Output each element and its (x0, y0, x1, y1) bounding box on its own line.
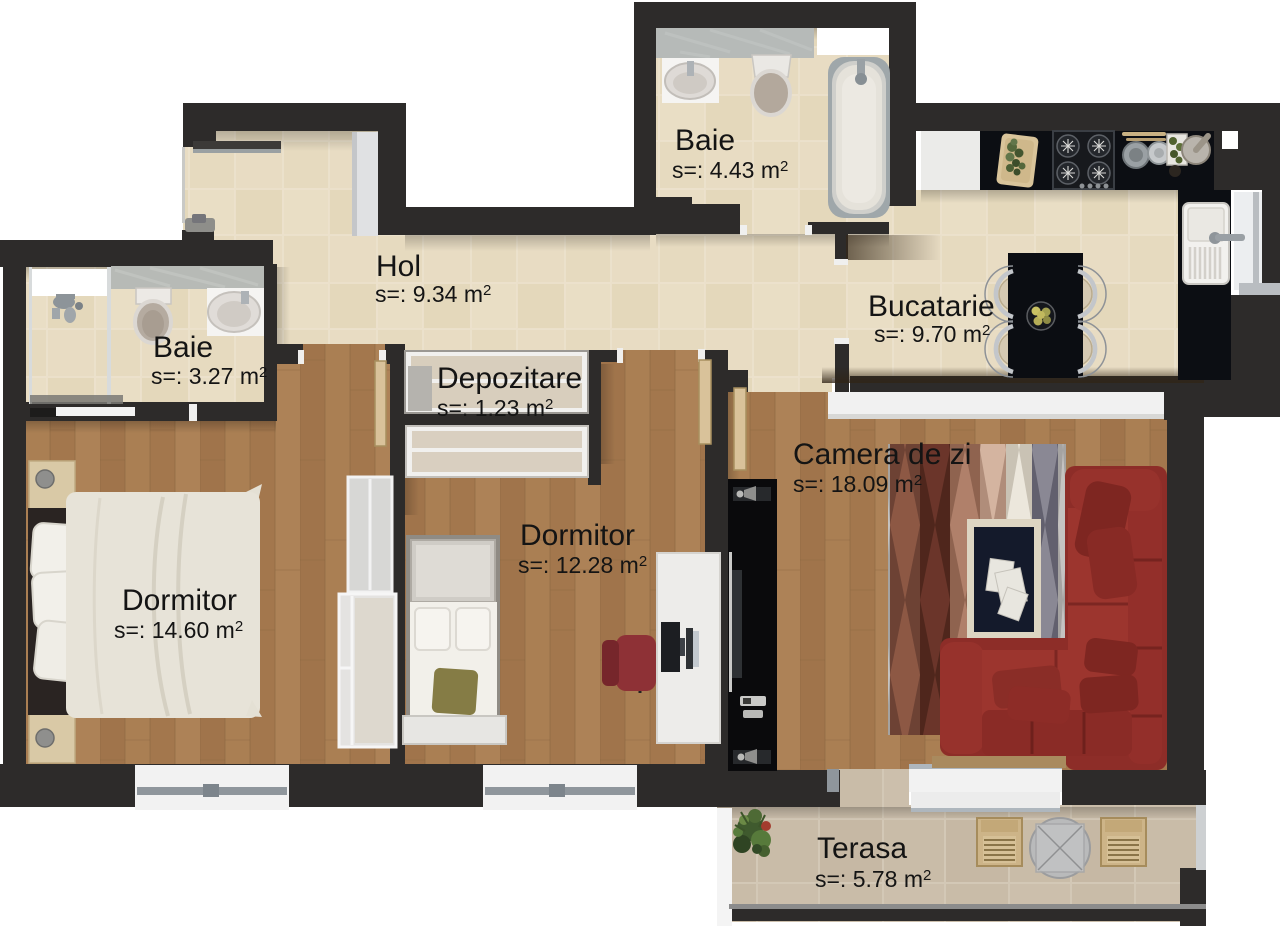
svg-text:Baie: Baie (675, 124, 735, 157)
svg-text:s=: 1.23 m2: s=: 1.23 m2 (437, 395, 553, 421)
svg-text:s=: 9.70 m2: s=: 9.70 m2 (874, 321, 990, 347)
svg-text:s=: 18.09 m2: s=: 18.09 m2 (793, 471, 922, 497)
svg-text:s=: 9.34 m2: s=: 9.34 m2 (375, 281, 491, 307)
svg-text:Hol: Hol (376, 250, 421, 283)
svg-text:Camera de zi: Camera de zi (793, 438, 971, 471)
svg-text:s=: 5.78 m2: s=: 5.78 m2 (815, 866, 931, 892)
svg-text:s=: 4.43 m2: s=: 4.43 m2 (672, 157, 788, 183)
svg-text:Depozitare: Depozitare (437, 362, 582, 395)
svg-text:Bucatarie: Bucatarie (868, 290, 995, 323)
svg-text:Dormitor: Dormitor (520, 519, 635, 552)
svg-text:s=: 14.60 m2: s=: 14.60 m2 (114, 617, 243, 643)
svg-text:Terasa: Terasa (817, 832, 907, 865)
svg-text:s=: 12.28 m2: s=: 12.28 m2 (518, 552, 647, 578)
svg-text:Baie: Baie (153, 331, 213, 364)
svg-text:s=: 3.27 m2: s=: 3.27 m2 (151, 363, 267, 389)
svg-text:Dormitor: Dormitor (122, 584, 237, 617)
